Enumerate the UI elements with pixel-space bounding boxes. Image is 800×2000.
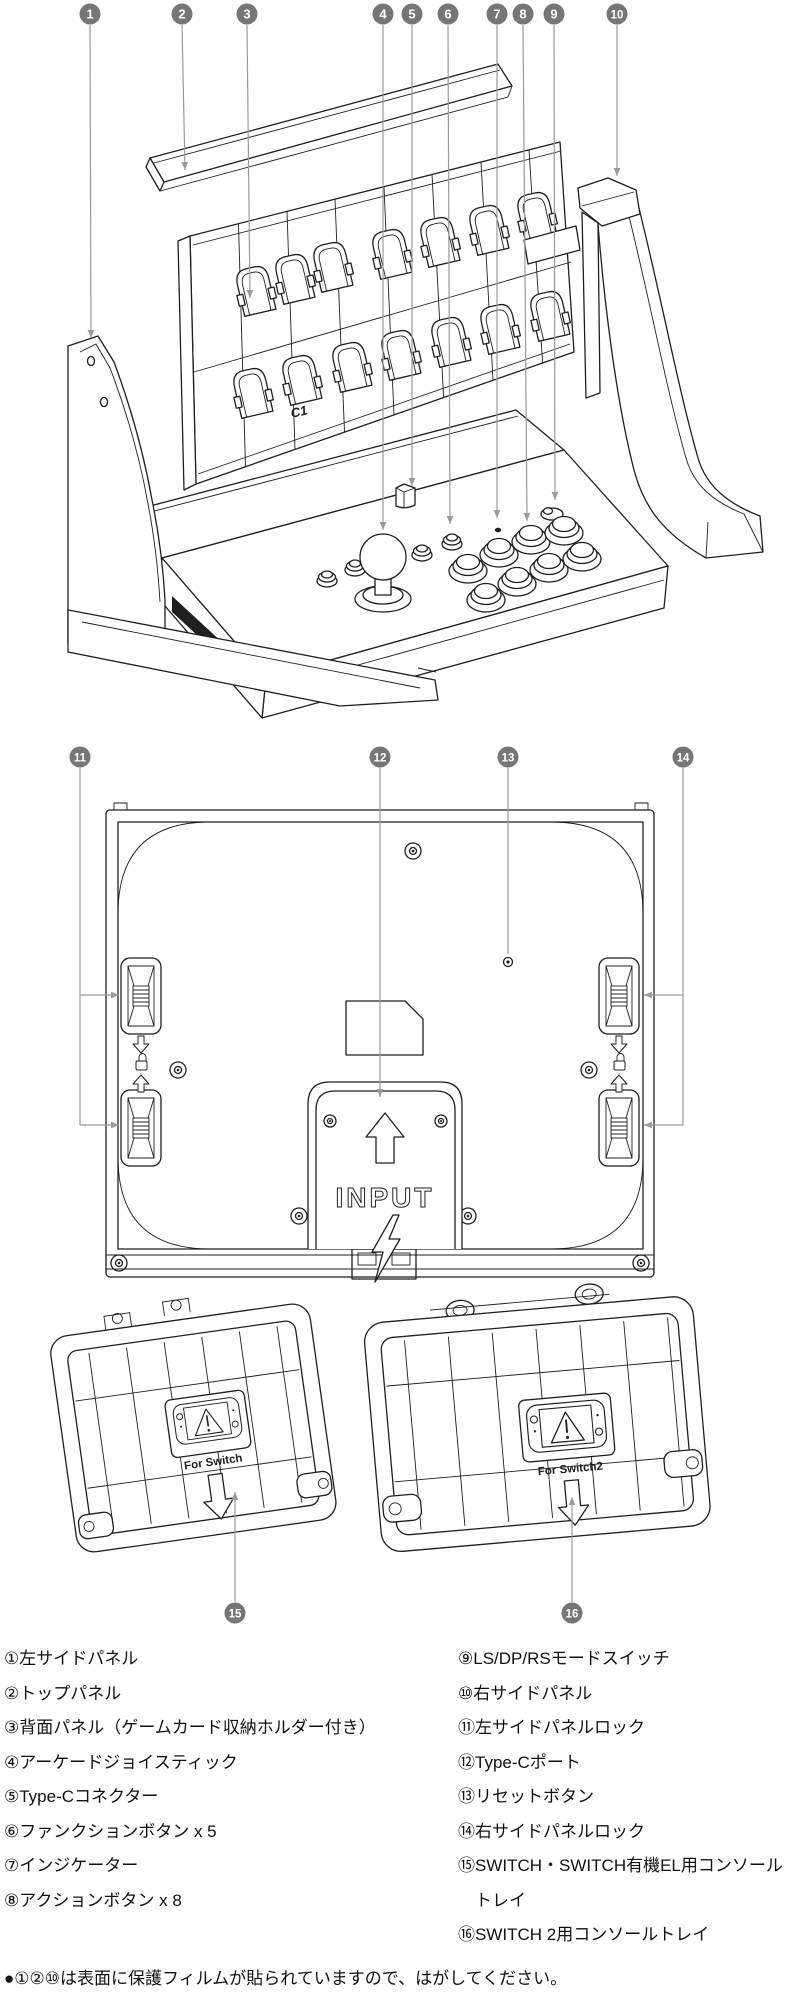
tray-clamp xyxy=(77,1511,114,1539)
left-panel-lock-upper xyxy=(121,958,161,1034)
list-item: ⑯SWITCH 2用コンソールトレイ xyxy=(458,1918,783,1953)
right-panel-lock-lower xyxy=(599,1090,639,1166)
tray-clamp xyxy=(663,1449,703,1478)
switch-tray: For Switch xyxy=(46,1282,339,1554)
list-item: ⑥ファンクションボタン x 5 xyxy=(4,1815,376,1850)
input-label: INPUT xyxy=(336,1182,435,1213)
list-item: ③背面パネル（ゲームカード収納ホルダー付き） xyxy=(4,1711,376,1746)
manual-page: C1 xyxy=(0,0,800,2000)
left-panel-lock-lower xyxy=(121,1090,161,1166)
indicator-led xyxy=(495,528,501,532)
tray-clamp xyxy=(296,1470,333,1498)
list-item: ⑨LS/DP/RSモードスイッチ xyxy=(458,1642,783,1677)
warning-label xyxy=(518,1393,615,1463)
callout-number: 16 xyxy=(566,1609,579,1621)
protective-film-note: ●①②⑩は表面に保護フィルムが貼られていますので、はがしてください。 xyxy=(4,1964,567,1989)
parts-list-left-column: ①左サイドパネル ②トップパネル ③背面パネル（ゲームカード収納ホルダー付き） … xyxy=(4,1642,376,1918)
list-item: ⑤Type-Cコネクター xyxy=(4,1780,376,1815)
callout-number: 3 xyxy=(243,7,250,22)
callout-number: 8 xyxy=(519,7,526,22)
warning-label xyxy=(164,1390,251,1459)
parts-diagram: C1 xyxy=(0,0,800,1630)
callout-number: 11 xyxy=(74,753,87,765)
tray-clamp xyxy=(382,1494,422,1523)
parts-list-right-column: ⑨LS/DP/RSモードスイッチ ⑩右サイドパネル ⑪左サイドパネルロック ⑫T… xyxy=(458,1642,783,1953)
callout-number: 10 xyxy=(611,10,624,22)
callout-number: 5 xyxy=(408,7,415,22)
callout-number: 12 xyxy=(374,753,387,765)
list-item: ⑩右サイドパネル xyxy=(458,1677,783,1712)
list-item: ⑫Type-Cポート xyxy=(458,1746,783,1781)
list-item: ②トップパネル xyxy=(4,1677,376,1712)
callout-number: 7 xyxy=(493,7,500,22)
right-panel-lock-upper xyxy=(599,958,639,1034)
tray-figures: For Switch For Switch2 xyxy=(46,1275,712,1554)
callout-number: 6 xyxy=(444,7,451,22)
callout-number: 1 xyxy=(86,7,93,22)
callout-number: 14 xyxy=(677,753,690,765)
list-item: ⑮SWITCH・SWITCH有機EL用コンソール xyxy=(458,1849,783,1884)
list-item: ⑬リセットボタン xyxy=(458,1780,783,1815)
list-item: ④アーケードジョイスティック xyxy=(4,1746,376,1781)
list-item: ①左サイドパネル xyxy=(4,1642,376,1677)
switch2-tray: For Switch2 xyxy=(361,1275,712,1553)
type-c-connector xyxy=(396,484,415,508)
exploded-view-figure: C1 xyxy=(68,64,763,718)
callout-number: 9 xyxy=(550,7,557,22)
list-item: ⑧アクションボタン x 8 xyxy=(4,1884,376,1919)
list-item: ⑦インジケーター xyxy=(4,1849,376,1884)
joystick-ball xyxy=(360,534,406,580)
list-item: ⑪左サイドパネルロック xyxy=(458,1711,783,1746)
list-item: トレイ xyxy=(458,1884,783,1919)
callout-number: 15 xyxy=(229,1609,242,1621)
callout-number: 2 xyxy=(178,7,185,22)
callout-number: 13 xyxy=(502,753,515,765)
callout-number: 4 xyxy=(379,7,387,22)
list-item: ⑭右サイドパネルロック xyxy=(458,1815,783,1850)
